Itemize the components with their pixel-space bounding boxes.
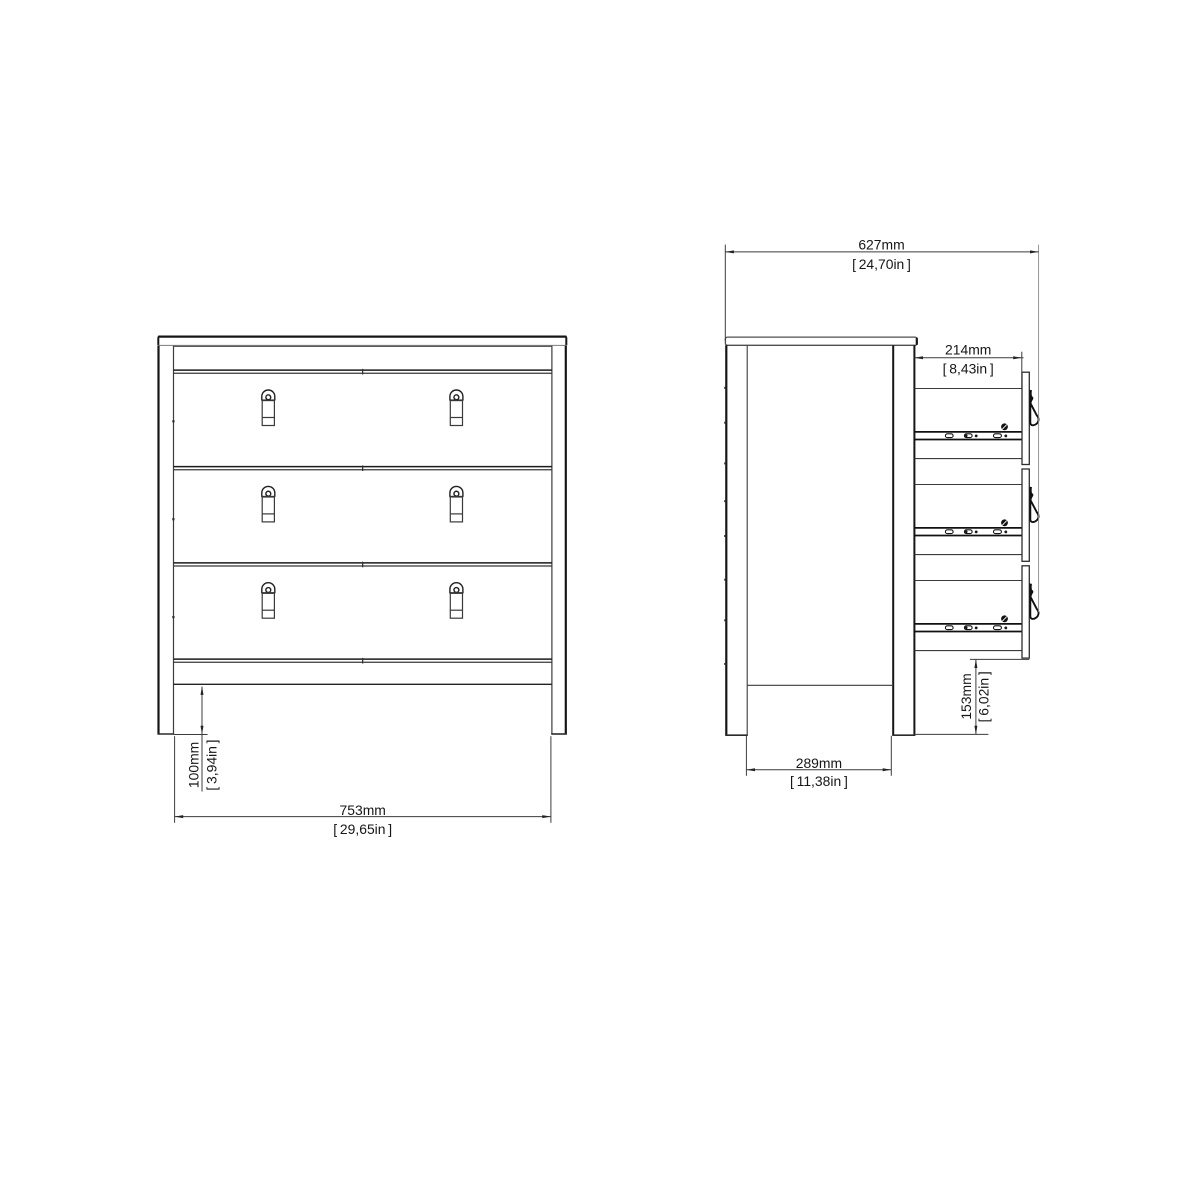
svg-text:153mm: 153mm	[958, 673, 974, 719]
svg-text:[ 29,65in ]: [ 29,65in ]	[333, 821, 392, 837]
svg-text:100mm: 100mm	[185, 742, 201, 788]
svg-text:289mm: 289mm	[796, 755, 842, 771]
svg-text:214mm: 214mm	[945, 341, 991, 357]
svg-text:753mm: 753mm	[340, 802, 386, 818]
svg-text:[ 24,70in ]: [ 24,70in ]	[852, 256, 911, 272]
svg-text:[ 11,38in ]: [ 11,38in ]	[790, 773, 848, 789]
svg-text:[ 6,02in ]: [ 6,02in ]	[975, 671, 991, 722]
svg-text:[ 8,43in ]: [ 8,43in ]	[943, 360, 994, 376]
svg-text:627mm: 627mm	[858, 236, 904, 252]
svg-text:[ 3,94in ]: [ 3,94in ]	[203, 739, 219, 790]
